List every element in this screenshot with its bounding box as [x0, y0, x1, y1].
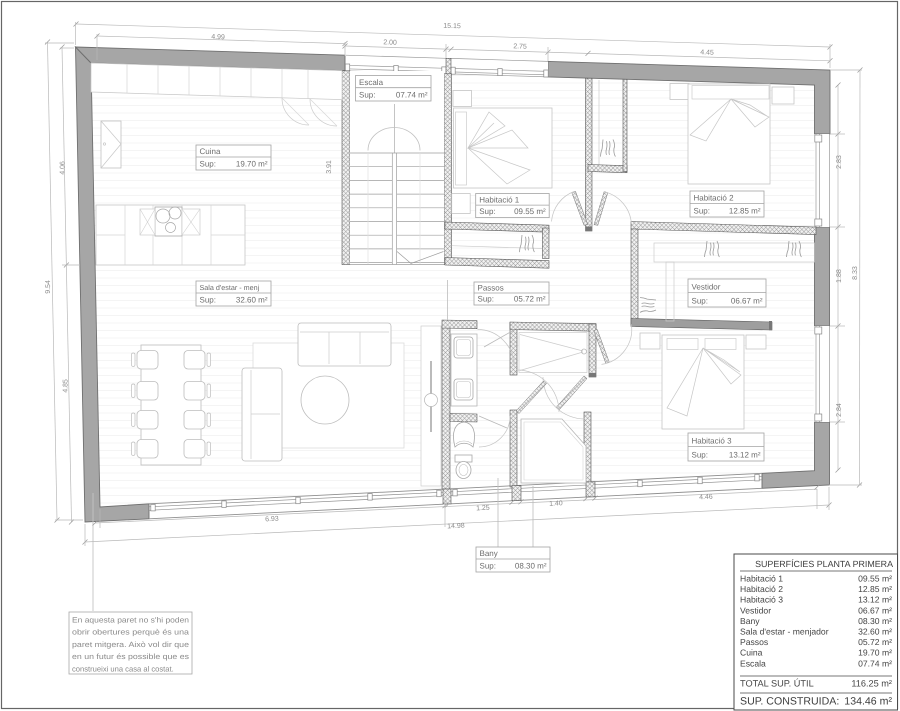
svg-text:14.98: 14.98 — [447, 523, 465, 531]
svg-text:12.85 m²: 12.85 m² — [858, 584, 892, 594]
svg-text:SUP. CONSTRUIDA:: SUP. CONSTRUIDA: — [740, 696, 839, 708]
svg-text:Habitació 1: Habitació 1 — [479, 195, 520, 204]
svg-text:1.25: 1.25 — [476, 505, 490, 513]
svg-text:2.00: 2.00 — [383, 39, 397, 46]
svg-text:Sup:: Sup: — [479, 207, 495, 216]
svg-text:Escala: Escala — [740, 658, 766, 668]
svg-text:09.55 m²: 09.55 m² — [514, 207, 546, 216]
svg-text:4.06: 4.06 — [59, 161, 66, 175]
svg-text:Habitació 3: Habitació 3 — [740, 595, 783, 605]
svg-text:Sup:: Sup: — [694, 207, 710, 216]
svg-text:4.45: 4.45 — [700, 49, 714, 56]
svg-text:19.70 m²: 19.70 m² — [236, 160, 268, 169]
svg-text:13.12 m²: 13.12 m² — [858, 595, 892, 605]
svg-text:116.25 m²: 116.25 m² — [851, 679, 892, 689]
svg-text:Sala d'estar - menj: Sala d'estar - menj — [200, 283, 260, 292]
svg-text:Sup:: Sup: — [200, 160, 216, 169]
svg-text:Sup:: Sup: — [692, 297, 708, 306]
svg-text:3.91: 3.91 — [326, 160, 333, 174]
svg-text:15.15: 15.15 — [443, 23, 461, 31]
svg-text:obrir obertures perquè és una: obrir obertures perquè és una — [72, 628, 190, 637]
svg-text:9.54: 9.54 — [45, 280, 52, 294]
svg-text:Habitació 2: Habitació 2 — [694, 194, 735, 203]
svg-text:Vestidor: Vestidor — [740, 605, 771, 615]
svg-text:07.74 m²: 07.74 m² — [858, 658, 892, 668]
svg-text:Escala: Escala — [359, 78, 384, 87]
svg-text:en un futur és possible que es: en un futur és possible que es — [72, 652, 189, 661]
svg-text:05.72 m²: 05.72 m² — [858, 637, 892, 647]
svg-text:4.99: 4.99 — [211, 34, 225, 41]
svg-text:13.12 m²: 13.12 m² — [729, 451, 761, 460]
svg-text:05.72 m²: 05.72 m² — [514, 295, 546, 304]
svg-text:6.93: 6.93 — [265, 516, 279, 524]
svg-text:32.60 m²: 32.60 m² — [236, 296, 268, 305]
svg-text:08.30 m²: 08.30 m² — [858, 616, 892, 626]
svg-text:Bany: Bany — [480, 549, 498, 558]
svg-text:Habitació 1: Habitació 1 — [740, 574, 783, 584]
svg-text:4.85: 4.85 — [62, 379, 69, 393]
svg-text:En aquesta paret no s'hi poden: En aquesta paret no s'hi poden — [72, 616, 189, 625]
svg-text:Sala d'estar - menjador: Sala d'estar - menjador — [740, 627, 829, 637]
svg-text:Sup:: Sup: — [480, 562, 496, 571]
svg-text:Passos: Passos — [478, 284, 504, 293]
svg-text:2.75: 2.75 — [513, 43, 527, 50]
svg-text:06.67 m²: 06.67 m² — [731, 297, 763, 306]
svg-text:Sup:: Sup: — [478, 295, 494, 304]
svg-text:SUPERFÍCIES PLANTA PRIMERA: SUPERFÍCIES PLANTA PRIMERA — [755, 559, 893, 569]
svg-text:09.55 m²: 09.55 m² — [858, 574, 892, 584]
svg-text:1.40: 1.40 — [549, 500, 563, 508]
svg-text:Sup:: Sup: — [200, 296, 216, 305]
svg-text:Vestidor: Vestidor — [692, 282, 721, 291]
svg-text:2.83: 2.83 — [836, 155, 843, 169]
svg-text:TOTAL SUP. ÚTIL: TOTAL SUP. ÚTIL — [740, 679, 814, 689]
svg-text:Sup:: Sup: — [692, 451, 708, 460]
svg-text:Cuina: Cuina — [200, 147, 221, 156]
svg-text:Sup:: Sup: — [359, 91, 375, 100]
svg-text:32.60 m²: 32.60 m² — [858, 627, 892, 637]
svg-text:construeixi una casa al costat: construeixi una casa al costat. — [72, 664, 174, 673]
svg-text:19.70 m²: 19.70 m² — [858, 648, 892, 658]
svg-text:paret mitgera. Això vol dir qu: paret mitgera. Això vol dir que — [72, 640, 189, 649]
svg-text:134.46 m²: 134.46 m² — [844, 696, 892, 708]
svg-text:Passos: Passos — [740, 637, 768, 647]
svg-text:4.46: 4.46 — [699, 494, 713, 502]
svg-text:07.74 m²: 07.74 m² — [396, 91, 428, 100]
svg-text:Habitació 2: Habitació 2 — [740, 584, 783, 594]
svg-text:1.88: 1.88 — [836, 269, 843, 283]
svg-text:2.84: 2.84 — [836, 403, 843, 417]
svg-text:08.30 m²: 08.30 m² — [515, 562, 547, 571]
svg-text:06.67 m²: 06.67 m² — [858, 605, 892, 615]
svg-text:8.33: 8.33 — [852, 266, 859, 280]
svg-text:Cuina: Cuina — [740, 648, 763, 658]
svg-text:Habitació 3: Habitació 3 — [692, 436, 733, 445]
svg-text:12.85 m²: 12.85 m² — [729, 207, 761, 216]
svg-text:Bany: Bany — [740, 616, 760, 626]
